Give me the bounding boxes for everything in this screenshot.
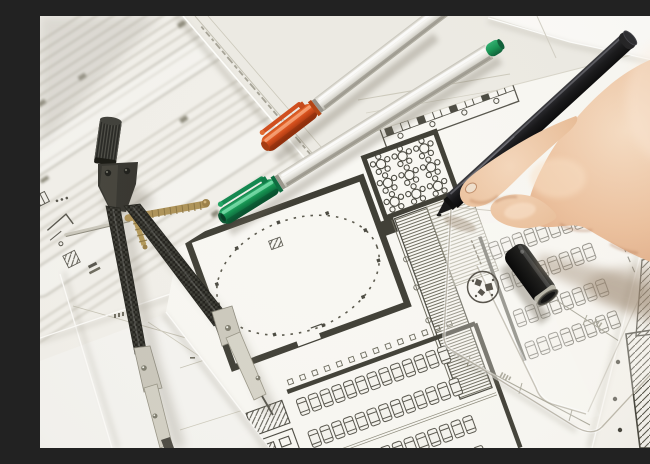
vignette [40, 16, 650, 448]
architect-drawing-photo: Close-up photograph of an architect's ri… [40, 16, 650, 448]
photo-canvas: Close-up photograph of an architect's ri… [40, 16, 650, 448]
